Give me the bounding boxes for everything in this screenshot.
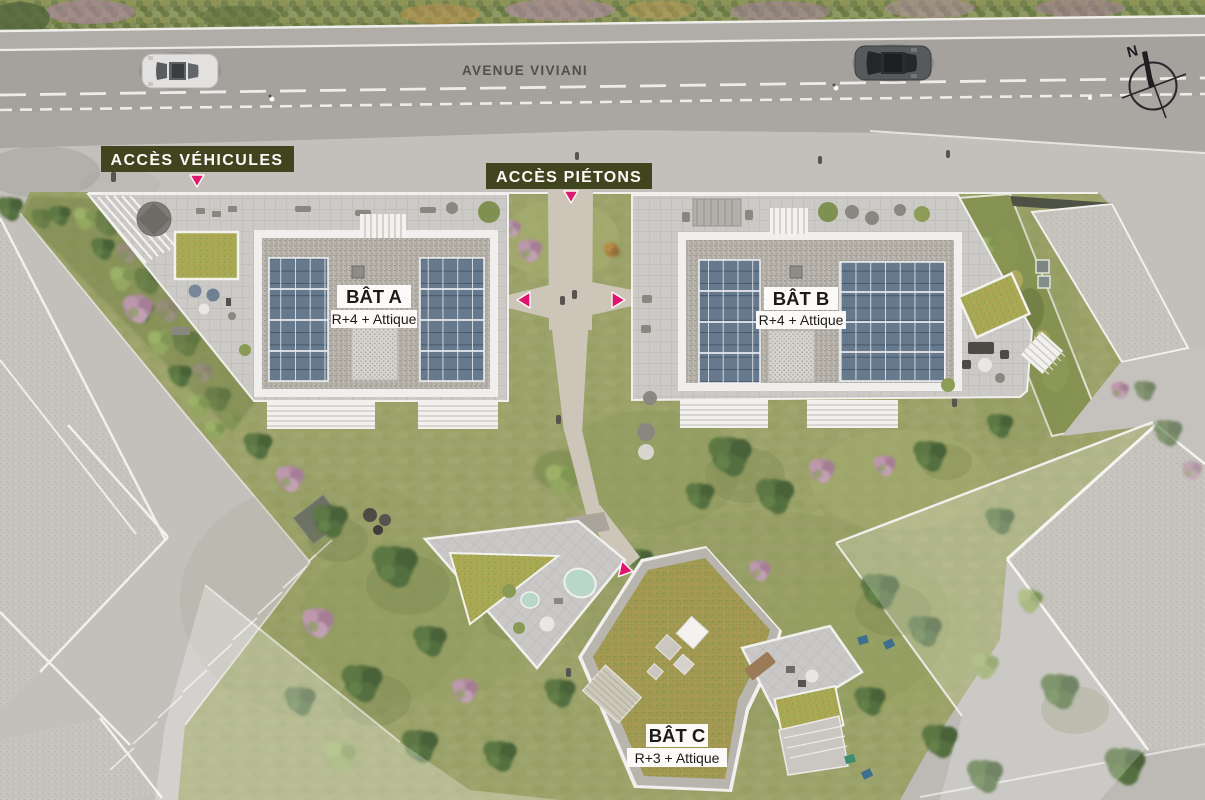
svg-text:BÂT B: BÂT B — [773, 288, 830, 309]
svg-text:BÂT A: BÂT A — [346, 286, 402, 307]
svg-text:ACCÈS VÉHICULES: ACCÈS VÉHICULES — [110, 150, 283, 169]
svg-text:R+3 + Attique: R+3 + Attique — [635, 750, 720, 766]
svg-text:R+4 + Attique: R+4 + Attique — [759, 312, 844, 328]
svg-text:ACCÈS PIÉTONS: ACCÈS PIÉTONS — [496, 167, 642, 186]
svg-text:R+4 + Attique: R+4 + Attique — [332, 311, 417, 327]
svg-text:BÂT C: BÂT C — [649, 725, 706, 746]
svg-text:AVENUE VIVIANI: AVENUE VIVIANI — [462, 63, 588, 78]
